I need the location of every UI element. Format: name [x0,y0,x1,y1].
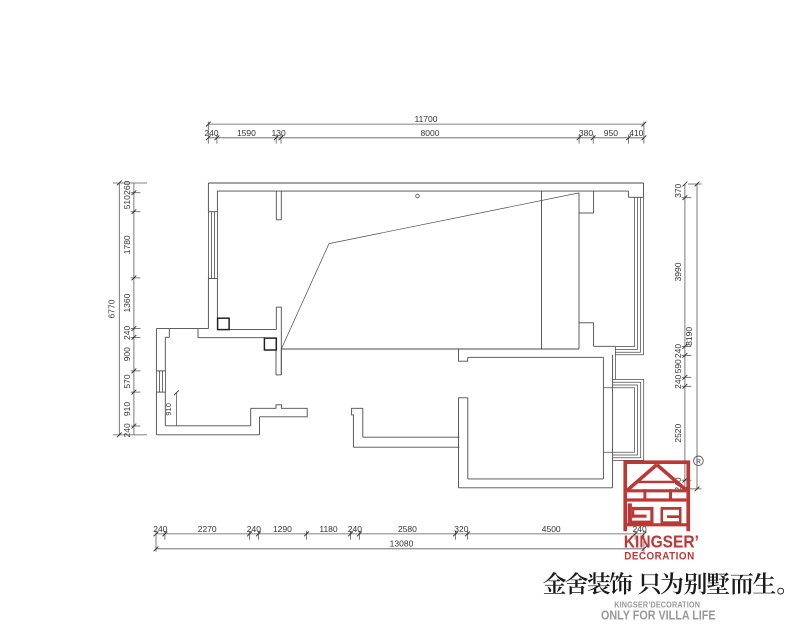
svg-text:240: 240 [673,374,683,388]
svg-text:1290: 1290 [273,524,292,534]
svg-text:910: 910 [122,402,132,416]
svg-text:370: 370 [673,183,683,197]
svg-text:240: 240 [204,128,218,138]
svg-text:410: 410 [629,128,643,138]
svg-text:1590: 1590 [237,128,256,138]
svg-text:6770: 6770 [107,299,117,318]
svg-text:8190: 8190 [684,327,694,346]
svg-text:240: 240 [122,326,132,340]
svg-text:R: R [696,458,701,465]
svg-text:950: 950 [604,128,618,138]
svg-text:1780: 1780 [122,235,132,254]
svg-text:260: 260 [122,180,132,194]
svg-text:570: 570 [122,374,132,388]
svg-text:510: 510 [122,195,132,209]
svg-text:240: 240 [348,524,362,534]
svg-text:13080: 13080 [390,539,414,549]
svg-text:240: 240 [153,524,167,534]
svg-text:900: 900 [122,347,132,361]
svg-text:320: 320 [454,524,468,534]
svg-text:3990: 3990 [673,262,683,281]
svg-text:130: 130 [272,128,286,138]
svg-text:240: 240 [673,344,683,358]
svg-text:240: 240 [122,423,132,437]
svg-text:2520: 2520 [673,423,683,442]
svg-text:11700: 11700 [414,114,437,124]
svg-text:1180: 1180 [319,524,338,534]
svg-text:910: 910 [164,403,173,416]
svg-text:2270: 2270 [198,524,217,534]
svg-text:590: 590 [673,359,683,373]
svg-text:8000: 8000 [421,128,440,138]
svg-text:380: 380 [579,128,593,138]
svg-text:ONLY FOR VILLA LIFE: ONLY FOR VILLA LIFE [601,609,716,623]
svg-text:4500: 4500 [542,524,561,534]
svg-text:2580: 2580 [398,524,417,534]
svg-text:240: 240 [247,524,261,534]
svg-text:1360: 1360 [122,293,132,312]
svg-text:DECORATION: DECORATION [624,550,695,563]
